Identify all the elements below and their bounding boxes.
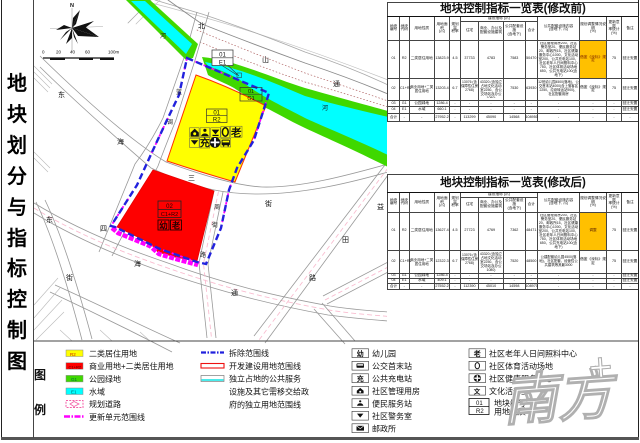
svg-text:01: 01 bbox=[476, 401, 483, 407]
svg-text:邮政所: 邮政所 bbox=[372, 424, 396, 434]
svg-text:01: 01 bbox=[248, 89, 254, 95]
svg-text:01: 01 bbox=[219, 53, 226, 59]
svg-text:E1: E1 bbox=[71, 390, 77, 395]
svg-text:C1+R2: C1+R2 bbox=[69, 364, 82, 369]
svg-text:充: 充 bbox=[357, 374, 364, 383]
svg-text:02: 02 bbox=[166, 204, 173, 210]
svg-text:河: 河 bbox=[322, 104, 328, 112]
svg-text:路: 路 bbox=[309, 273, 316, 282]
svg-text:40: 40 bbox=[70, 50, 76, 55]
svg-text:通: 通 bbox=[231, 288, 238, 297]
svg-text:周: 周 bbox=[214, 204, 220, 211]
svg-text:四: 四 bbox=[100, 225, 107, 233]
svg-text:例: 例 bbox=[34, 402, 46, 417]
svg-text:60: 60 bbox=[85, 50, 91, 55]
svg-text:益: 益 bbox=[377, 202, 384, 211]
svg-text:便民服务站: 便民服务站 bbox=[372, 399, 412, 409]
svg-text:开发建设用地范围线: 开发建设用地范围线 bbox=[229, 361, 301, 371]
svg-text:0: 0 bbox=[42, 50, 45, 55]
svg-text:规划道路: 规划道路 bbox=[89, 399, 121, 409]
svg-text:E1: E1 bbox=[219, 60, 227, 66]
svg-text:老: 老 bbox=[230, 126, 242, 139]
svg-text:街: 街 bbox=[66, 273, 73, 282]
svg-text:社区管理用房: 社区管理用房 bbox=[372, 386, 420, 396]
svg-text:幼: 幼 bbox=[357, 349, 364, 358]
svg-text:调: 调 bbox=[167, 118, 173, 126]
svg-text:R2: R2 bbox=[476, 409, 484, 415]
svg-text:海: 海 bbox=[117, 137, 124, 146]
svg-text:老: 老 bbox=[473, 349, 481, 358]
svg-text:路: 路 bbox=[200, 251, 206, 259]
svg-text:充: 充 bbox=[200, 137, 210, 150]
svg-text:独立占地的公共服务: 独立占地的公共服务 bbox=[229, 374, 301, 384]
svg-text:社区警务室: 社区警务室 bbox=[372, 411, 412, 421]
svg-text:山: 山 bbox=[262, 55, 269, 64]
svg-text:田: 田 bbox=[342, 236, 349, 244]
svg-text:海: 海 bbox=[134, 259, 141, 268]
svg-text:01: 01 bbox=[213, 111, 220, 117]
svg-text:幼儿园: 幼儿园 bbox=[372, 349, 396, 359]
svg-text:蓝: 蓝 bbox=[176, 88, 182, 96]
svg-text:幼: 幼 bbox=[159, 221, 168, 231]
svg-text:公交首末站: 公交首末站 bbox=[372, 361, 412, 371]
svg-text:+: + bbox=[587, 345, 614, 393]
svg-text:100m: 100m bbox=[108, 50, 120, 55]
svg-text:G1: G1 bbox=[71, 377, 78, 382]
svg-text:20: 20 bbox=[56, 50, 62, 55]
svg-text:文: 文 bbox=[473, 387, 481, 396]
svg-text:设施及其它需移交给政: 设施及其它需移交给政 bbox=[229, 387, 309, 397]
svg-text:商业用地+二类居住用地: 商业用地+二类居住用地 bbox=[89, 361, 174, 371]
svg-text:水域: 水域 bbox=[89, 387, 105, 397]
svg-text:东: 东 bbox=[46, 215, 53, 224]
svg-text:R2: R2 bbox=[213, 118, 221, 124]
svg-text:G1: G1 bbox=[247, 96, 254, 102]
svg-text:R2: R2 bbox=[70, 352, 76, 357]
svg-text:图: 图 bbox=[34, 368, 46, 382]
svg-text:N: N bbox=[70, 3, 74, 9]
svg-text:街: 街 bbox=[265, 199, 272, 208]
svg-text:C1+R2: C1+R2 bbox=[161, 212, 178, 218]
svg-text:街: 街 bbox=[212, 221, 218, 229]
svg-text:公共充电站: 公共充电站 bbox=[372, 374, 412, 384]
svg-text:河: 河 bbox=[160, 32, 166, 40]
svg-text:东: 东 bbox=[58, 90, 65, 99]
svg-text:更新单元范围线: 更新单元范围线 bbox=[89, 412, 145, 422]
svg-text:府的独立用地范围线: 府的独立用地范围线 bbox=[229, 400, 301, 410]
svg-text:北: 北 bbox=[198, 22, 205, 30]
svg-text:二类居住用地: 二类居住用地 bbox=[89, 349, 137, 359]
svg-text:公园绿地: 公园绿地 bbox=[89, 374, 121, 384]
svg-text:通: 通 bbox=[333, 79, 340, 88]
svg-text:拆除范围线: 拆除范围线 bbox=[229, 348, 269, 358]
svg-text:三: 三 bbox=[188, 174, 195, 182]
svg-text:老: 老 bbox=[171, 221, 181, 231]
